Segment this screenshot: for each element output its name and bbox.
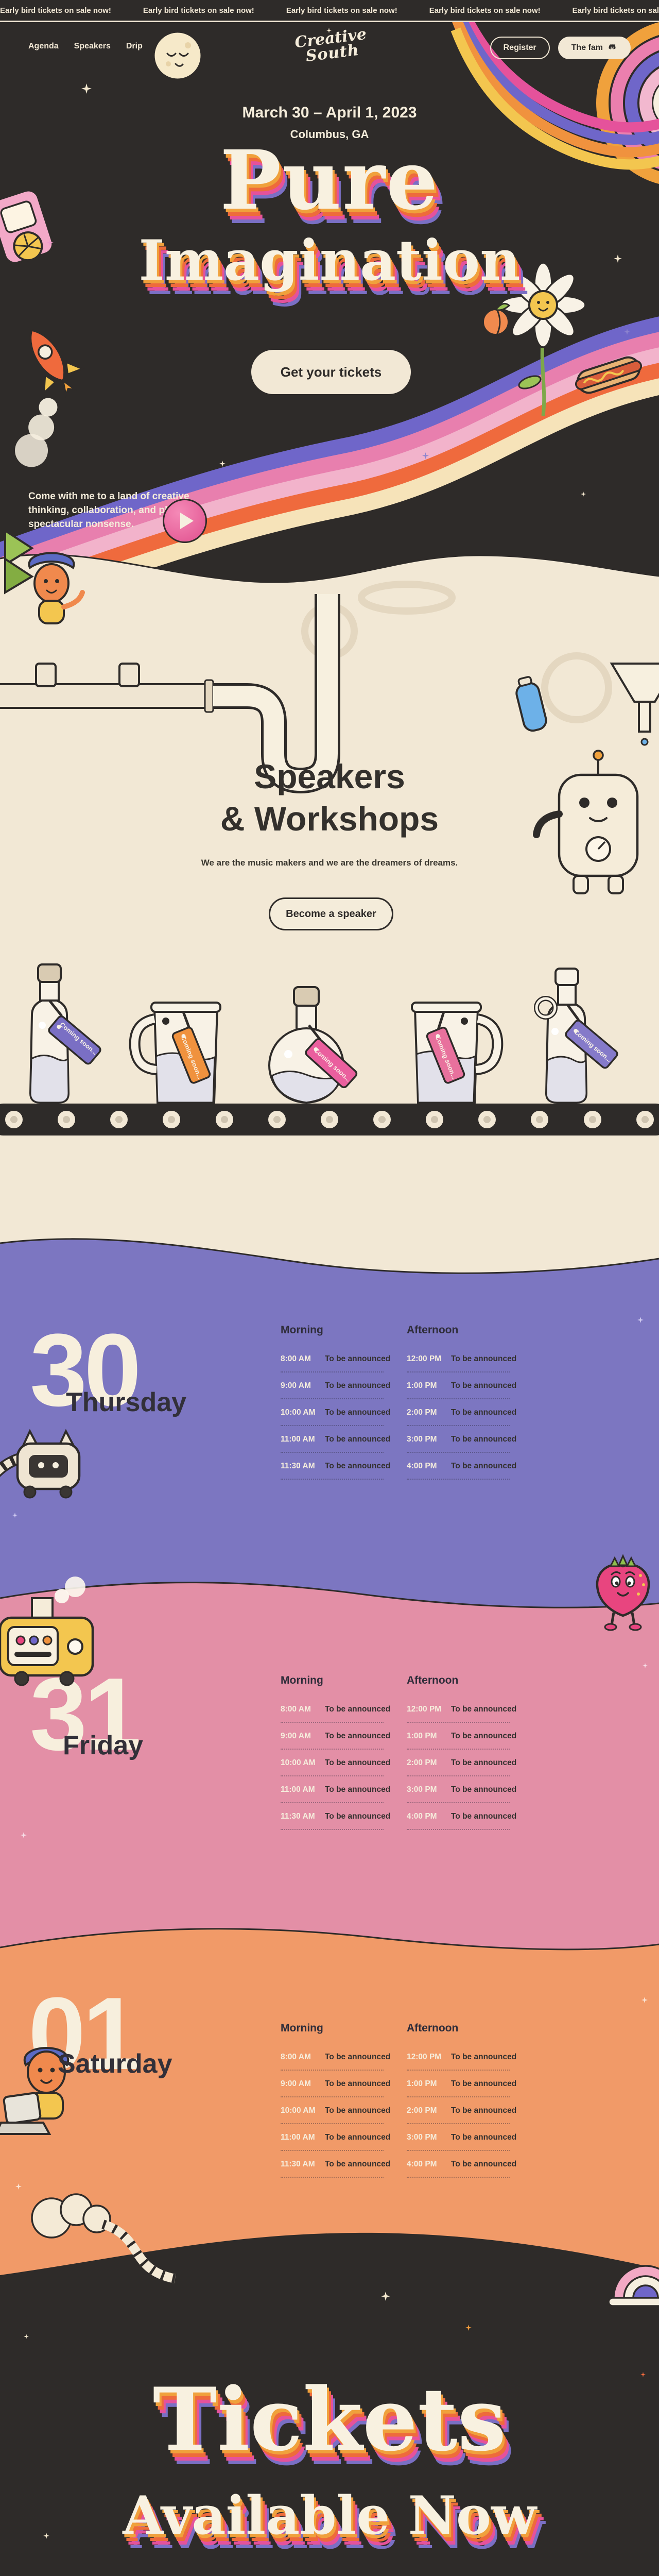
schedule-event: To be announced xyxy=(451,2106,516,2115)
schedule-time: 12:00 PM xyxy=(407,1354,451,1364)
schedule-time: 2:00 PM xyxy=(407,1758,451,1768)
bottle-pitcher-icon: Coming soon... xyxy=(135,1003,220,1103)
schedule-row: 2:00 PMTo be announced xyxy=(407,2097,510,2124)
schedule-time: 11:30 AM xyxy=(281,1812,325,1821)
schedule-row: 4:00 PMTo be announced xyxy=(407,2151,510,2178)
conveyor-roller xyxy=(110,1111,128,1128)
nav-buttons: Register The fam xyxy=(490,37,631,59)
speakers-title-line2: & Workshops xyxy=(0,802,659,836)
afternoon-column: Afternoon12:00 PMTo be announced1:00 PMT… xyxy=(407,1324,510,1480)
schedule-time: 10:00 AM xyxy=(281,2106,325,2115)
schedule-time: 9:00 AM xyxy=(281,2079,325,2089)
nav-links: Agenda Speakers Drip xyxy=(28,42,143,51)
schedule-time: 12:00 PM xyxy=(407,1705,451,1714)
play-icon xyxy=(180,513,194,529)
schedule-row: 1:00 PMTo be announced xyxy=(407,1372,510,1399)
peach-icon xyxy=(483,303,509,335)
schedule-row: 4:00 PMTo be announced xyxy=(407,1453,510,1480)
event-dates: March 30 – April 1, 2023 xyxy=(0,104,659,122)
schedule-event: To be announced xyxy=(451,1381,516,1391)
leaves-icon xyxy=(5,531,32,592)
conveyor-roller xyxy=(216,1111,233,1128)
schedule-event: To be announced xyxy=(451,1812,516,1821)
schedule-time: 12:00 PM xyxy=(407,2053,451,2062)
conveyor-belt xyxy=(0,1104,659,1136)
schedule-event: To be announced xyxy=(325,1758,390,1768)
schedule-time: 1:00 PM xyxy=(407,1381,451,1391)
schedule-time: 4:00 PM xyxy=(407,1812,451,1821)
get-tickets-button[interactable]: Get your tickets xyxy=(250,348,412,396)
schedule-event: To be announced xyxy=(325,1785,390,1794)
play-video-button[interactable] xyxy=(163,499,207,543)
hero-title-line2: Imagination xyxy=(0,233,659,289)
morning-column: Morning8:00 AMTo be announced9:00 AMTo b… xyxy=(281,1324,384,1480)
schedule-event: To be announced xyxy=(451,1354,516,1364)
schedule-time: 2:00 PM xyxy=(407,1408,451,1417)
schedule-row: 8:00 AMTo be announced xyxy=(281,1696,384,1723)
thursday-day-name: Thursday xyxy=(66,1387,186,1418)
schedule-row: 8:00 AMTo be announced xyxy=(281,1346,384,1372)
conveyor-roller xyxy=(636,1111,654,1128)
schedule-event: To be announced xyxy=(451,1462,516,1471)
strawberry-icon xyxy=(587,1555,659,1632)
schedule-time: 10:00 AM xyxy=(281,1758,325,1768)
schedule-row: 12:00 PMTo be announced xyxy=(407,2044,510,2071)
schedule-event: To be announced xyxy=(325,2160,390,2169)
schedule-event: To be announced xyxy=(325,1435,390,1444)
machine-icon xyxy=(0,1577,134,1695)
schedule-row: 1:00 PMTo be announced xyxy=(407,1723,510,1750)
schedule-row: 3:00 PMTo be announced xyxy=(407,2124,510,2151)
schedule-event: To be announced xyxy=(325,1705,390,1714)
schedule-row: 3:00 PMTo be announced xyxy=(407,1776,510,1803)
afternoon-column: Afternoon12:00 PMTo be announced1:00 PMT… xyxy=(407,2022,510,2178)
schedule-time: 3:00 PM xyxy=(407,1435,451,1444)
schedule-time: 8:00 AM xyxy=(281,1705,325,1714)
schedule-event: To be announced xyxy=(325,1354,390,1364)
become-speaker-label: Become a speaker xyxy=(286,908,376,920)
schedule-event: To be announced xyxy=(325,1812,390,1821)
thursday-schedule: Morning8:00 AMTo be announced9:00 AMTo b… xyxy=(281,1324,589,1480)
ticker-item: Early bird tickets on sale now! xyxy=(143,6,254,15)
schedule-row: 11:30 AMTo be announced xyxy=(281,1453,384,1480)
hero-title-line1: Pure xyxy=(0,140,659,222)
schedule-time: 11:00 AM xyxy=(281,1435,325,1444)
nav-link-agenda[interactable]: Agenda xyxy=(28,42,59,51)
schedule-time: 9:00 AM xyxy=(281,1732,325,1741)
schedule-row: 11:00 AMTo be announced xyxy=(281,2124,384,2151)
schedule-event: To be announced xyxy=(451,2160,516,2169)
the-fam-button[interactable]: The fam xyxy=(558,37,631,59)
robot-cat-icon xyxy=(0,1422,113,1504)
schedule-row: 2:00 PMTo be announced xyxy=(407,1399,510,1426)
nav-link-speakers[interactable]: Speakers xyxy=(74,42,111,51)
schedule-row: 4:00 PMTo be announced xyxy=(407,1803,510,1830)
saturday-day-name: Saturday xyxy=(58,2048,172,2079)
schedule-time: 10:00 AM xyxy=(281,1408,325,1417)
conveyor-roller xyxy=(163,1111,180,1128)
schedule-time: 3:00 PM xyxy=(407,2133,451,2142)
schedule-event: To be announced xyxy=(451,1785,516,1794)
nav-link-drip[interactable]: Drip xyxy=(126,42,143,51)
schedule-time: 1:00 PM xyxy=(407,1732,451,1741)
schedule-row: 9:00 AMTo be announced xyxy=(281,1723,384,1750)
schedule-event: To be announced xyxy=(451,2053,516,2062)
afternoon-heading: Afternoon xyxy=(407,1324,510,1336)
speaker-bottles: Coming soon... Coming soon... xyxy=(0,953,659,1108)
afternoon-heading: Afternoon xyxy=(407,1674,510,1687)
conveyor-roller xyxy=(584,1111,601,1128)
saturday-schedule: Morning8:00 AMTo be announced9:00 AMTo b… xyxy=(281,2022,589,2178)
schedule-event: To be announced xyxy=(451,1758,516,1768)
schedule-time: 8:00 AM xyxy=(281,1354,325,1364)
character-icon xyxy=(29,553,82,624)
tickets-title-line1: Tickets xyxy=(0,2376,659,2463)
schedule-row: 8:00 AMTo be announced xyxy=(281,2044,384,2071)
schedule-row: 1:00 PMTo be announced xyxy=(407,2071,510,2097)
register-label: Register xyxy=(504,43,536,53)
schedule-time: 4:00 PM xyxy=(407,1462,451,1471)
schedule-row: 11:00 AMTo be announced xyxy=(281,1776,384,1803)
schedule-time: 11:00 AM xyxy=(281,1785,325,1794)
conveyor-roller xyxy=(321,1111,338,1128)
tickets-title-line2: Available Now xyxy=(0,2489,659,2542)
discord-icon xyxy=(607,44,617,52)
schedule-event: To be announced xyxy=(325,1462,390,1471)
rainbow-cloud-icon xyxy=(608,2244,659,2311)
schedule-row: 9:00 AMTo be announced xyxy=(281,1372,384,1399)
morning-column: Morning8:00 AMTo be announced9:00 AMTo b… xyxy=(281,2022,384,2178)
ticker-item: Early bird tickets on sale now! xyxy=(429,6,541,15)
speakers-subtitle: We are the music makers and we are the d… xyxy=(201,856,458,870)
conveyor-roller xyxy=(531,1111,548,1128)
creative-south-logo[interactable]: Creative South xyxy=(294,27,369,65)
schedule-row: 11:30 AMTo be announced xyxy=(281,1803,384,1830)
schedule-event: To be announced xyxy=(451,2133,516,2142)
schedule-event: To be announced xyxy=(325,2133,390,2142)
morning-heading: Morning xyxy=(281,1324,384,1336)
rocket-icon xyxy=(0,318,113,473)
conveyor-roller xyxy=(478,1111,496,1128)
schedule-event: To be announced xyxy=(325,2053,390,2062)
conveyor-roller xyxy=(426,1111,443,1128)
wave-purple xyxy=(0,1229,659,1285)
schedule-time: 4:00 PM xyxy=(407,2160,451,2169)
wave-orange xyxy=(0,1911,659,1968)
register-button[interactable]: Register xyxy=(490,37,550,59)
schedule-row: 10:00 AMTo be announced xyxy=(281,1399,384,1426)
schedule-row: 12:00 PMTo be announced xyxy=(407,1696,510,1723)
schedule-event: To be announced xyxy=(451,1435,516,1444)
schedule-event: To be announced xyxy=(451,2079,516,2089)
schedule-time: 11:30 AM xyxy=(281,1462,325,1471)
get-tickets-label: Get your tickets xyxy=(281,364,382,380)
ticker-item: Early bird tickets on sale now! xyxy=(0,6,111,15)
conveyor-roller xyxy=(268,1111,286,1128)
morning-heading: Morning xyxy=(281,1674,384,1687)
bottle-pitcher-icon: Coming soon... xyxy=(412,1003,497,1103)
schedule-row: 11:30 AMTo be announced xyxy=(281,2151,384,2178)
afternoon-heading: Afternoon xyxy=(407,2022,510,2035)
schedule-row: 10:00 AMTo be announced xyxy=(281,1750,384,1776)
schedule-time: 2:00 PM xyxy=(407,2106,451,2115)
friday-schedule: Morning8:00 AMTo be announced9:00 AMTo b… xyxy=(281,1674,589,1830)
bottle-flask-icon: Coming soon... xyxy=(269,987,358,1103)
schedule-time: 11:30 AM xyxy=(281,2160,325,2169)
ticker-item: Early bird tickets on sale now! xyxy=(573,6,659,15)
schedule-time: 3:00 PM xyxy=(407,1785,451,1794)
morning-heading: Morning xyxy=(281,2022,384,2035)
schedule-event: To be announced xyxy=(451,1705,516,1714)
schedule-row: 9:00 AMTo be announced xyxy=(281,2071,384,2097)
bottle-jug-icon: Coming soon... xyxy=(536,969,619,1103)
schedule-event: To be announced xyxy=(325,1732,390,1741)
schedule-event: To be announced xyxy=(325,1381,390,1391)
morning-column: Morning8:00 AMTo be announced9:00 AMTo b… xyxy=(281,1674,384,1830)
schedule-time: 9:00 AM xyxy=(281,1381,325,1391)
schedule-row: 3:00 PMTo be announced xyxy=(407,1426,510,1453)
schedule-row: 12:00 PMTo be announced xyxy=(407,1346,510,1372)
schedule-time: 11:00 AM xyxy=(281,2133,325,2142)
schedule-event: To be announced xyxy=(325,2106,390,2115)
bottle-jug-icon: Coming soon... xyxy=(30,964,102,1103)
funnel-icon xyxy=(612,664,659,745)
conveyor-roller xyxy=(5,1111,23,1128)
afternoon-column: Afternoon12:00 PMTo be announced1:00 PMT… xyxy=(407,1674,510,1830)
schedule-row: 2:00 PMTo be announced xyxy=(407,1750,510,1776)
schedule-time: 8:00 AM xyxy=(281,2053,325,2062)
top-navigation: Agenda Speakers Drip Creative South Regi… xyxy=(0,22,659,84)
schedule-row: 10:00 AMTo be announced xyxy=(281,2097,384,2124)
conveyor-roller xyxy=(58,1111,75,1128)
become-speaker-button[interactable]: Become a speaker xyxy=(269,897,393,930)
friday-day-name: Friday xyxy=(63,1730,143,1761)
schedule-event: To be announced xyxy=(325,2079,390,2089)
the-fam-label: The fam xyxy=(571,43,603,53)
ticker-bar: Early bird tickets on sale now!Early bir… xyxy=(0,0,659,22)
page: Early bird tickets on sale now!Early bir… xyxy=(0,0,659,2576)
ticker-item: Early bird tickets on sale now! xyxy=(286,6,397,15)
schedule-event: To be announced xyxy=(451,1408,516,1417)
schedule-event: To be announced xyxy=(325,1408,390,1417)
speakers-title-line1: Speakers xyxy=(0,759,659,793)
conveyor-roller xyxy=(373,1111,391,1128)
schedule-row: 11:00 AMTo be announced xyxy=(281,1426,384,1453)
schedule-time: 1:00 PM xyxy=(407,2079,451,2089)
schedule-event: To be announced xyxy=(451,1732,516,1741)
cloud-hose-icon xyxy=(21,2192,196,2290)
